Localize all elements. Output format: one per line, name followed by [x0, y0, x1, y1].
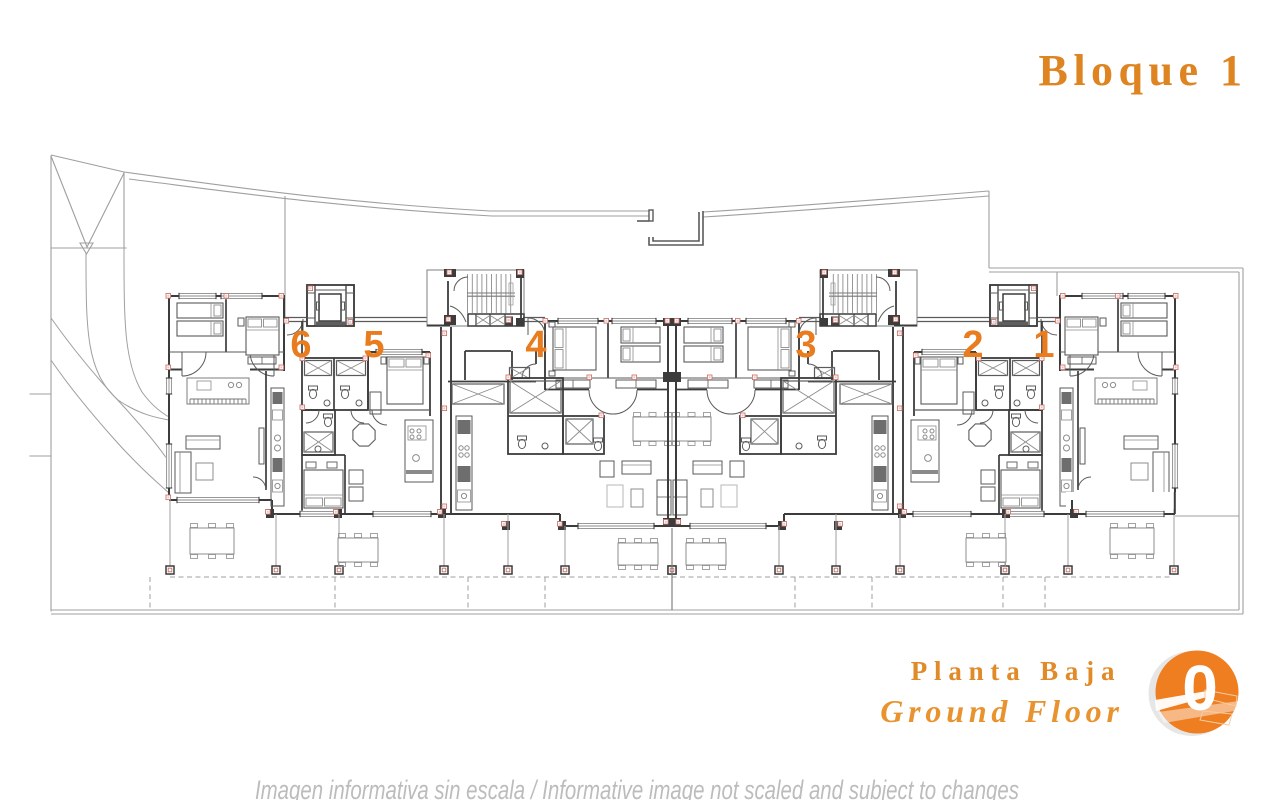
svg-text:0: 0	[1182, 652, 1218, 724]
svg-text:4: 4	[525, 324, 546, 366]
svg-text:1: 1	[1033, 324, 1054, 366]
svg-text:2: 2	[962, 324, 983, 366]
svg-text:5: 5	[363, 324, 384, 366]
svg-text:6: 6	[290, 324, 311, 366]
svg-text:Imagen informativa sin escala: Imagen informativa sin escala / Informat…	[255, 775, 1019, 800]
svg-text:3: 3	[795, 324, 816, 366]
svg-text:Bloque 1: Bloque 1	[1038, 46, 1247, 95]
svg-text:Planta Baja: Planta Baja	[911, 656, 1122, 686]
svg-text:Ground Floor: Ground Floor	[880, 693, 1123, 729]
